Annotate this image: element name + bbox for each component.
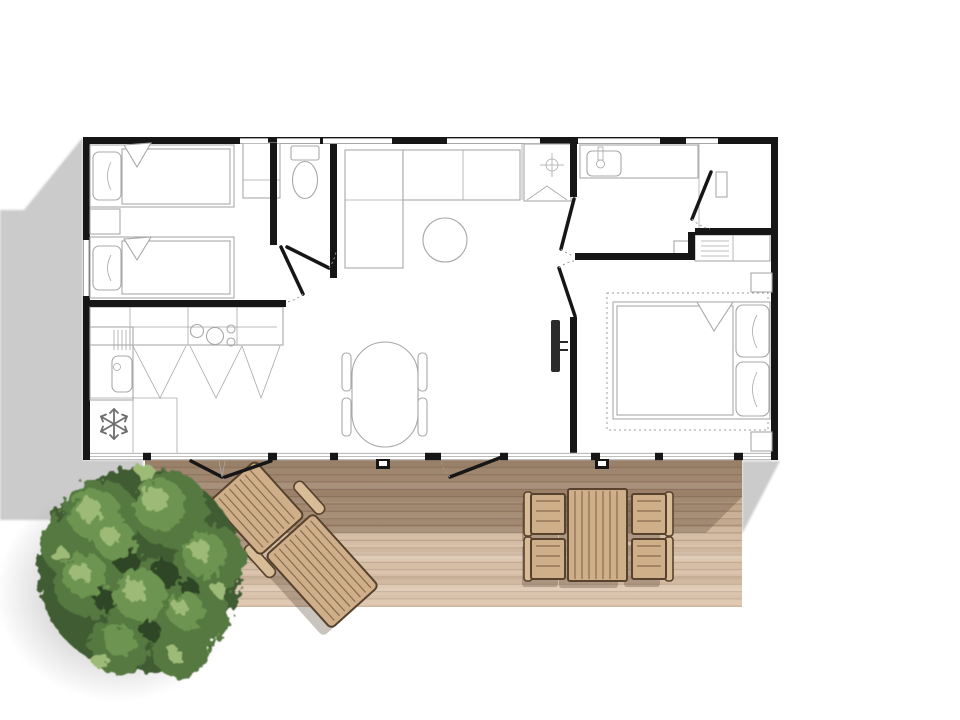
bed-1-pillow bbox=[93, 152, 121, 200]
twin-bedroom-nightstand bbox=[90, 209, 120, 234]
dining-chair bbox=[418, 353, 427, 391]
toilet-bowl bbox=[293, 162, 318, 199]
corner-sofa-left bbox=[345, 150, 403, 268]
toilet-tank bbox=[291, 146, 319, 160]
dining-chair bbox=[342, 398, 351, 436]
top-windows bbox=[240, 138, 718, 144]
wall-living-masterbedroom bbox=[570, 317, 577, 453]
outdoor-chair-top-right bbox=[632, 492, 673, 536]
wc bbox=[291, 146, 319, 199]
wall-entry-bedroom bbox=[695, 228, 771, 235]
nightstand-top bbox=[751, 273, 772, 292]
outdoor-chair-bottom-left bbox=[524, 537, 565, 581]
oval-dining-table bbox=[352, 342, 418, 447]
wall-living-shower bbox=[570, 143, 577, 197]
wall-bedroom-wc bbox=[270, 143, 277, 245]
left-window bbox=[83, 240, 89, 296]
bed-2-pillow bbox=[93, 246, 121, 290]
wall-jog bbox=[688, 232, 695, 260]
outdoor-chair-bottom-right bbox=[632, 537, 673, 581]
outdoor-table bbox=[568, 489, 627, 581]
wall-bedroom-kitchen bbox=[90, 300, 286, 307]
nightstand-bottom bbox=[751, 432, 772, 451]
corner-sofa-top bbox=[403, 150, 520, 200]
wall-bathroom-bedroom-left bbox=[575, 253, 690, 260]
floor-plan-stage bbox=[0, 0, 960, 720]
outdoor-dining-set bbox=[522, 489, 673, 588]
outdoor-chair-top-left bbox=[524, 492, 565, 536]
dining-chair bbox=[342, 353, 351, 391]
floor-plan-drawing bbox=[0, 0, 960, 720]
terrace-glass-wall bbox=[90, 453, 771, 460]
round-coffee-table bbox=[423, 218, 467, 262]
wall-wc-living bbox=[330, 143, 337, 278]
mobile-home bbox=[83, 138, 774, 477]
dining-chair bbox=[418, 398, 427, 436]
